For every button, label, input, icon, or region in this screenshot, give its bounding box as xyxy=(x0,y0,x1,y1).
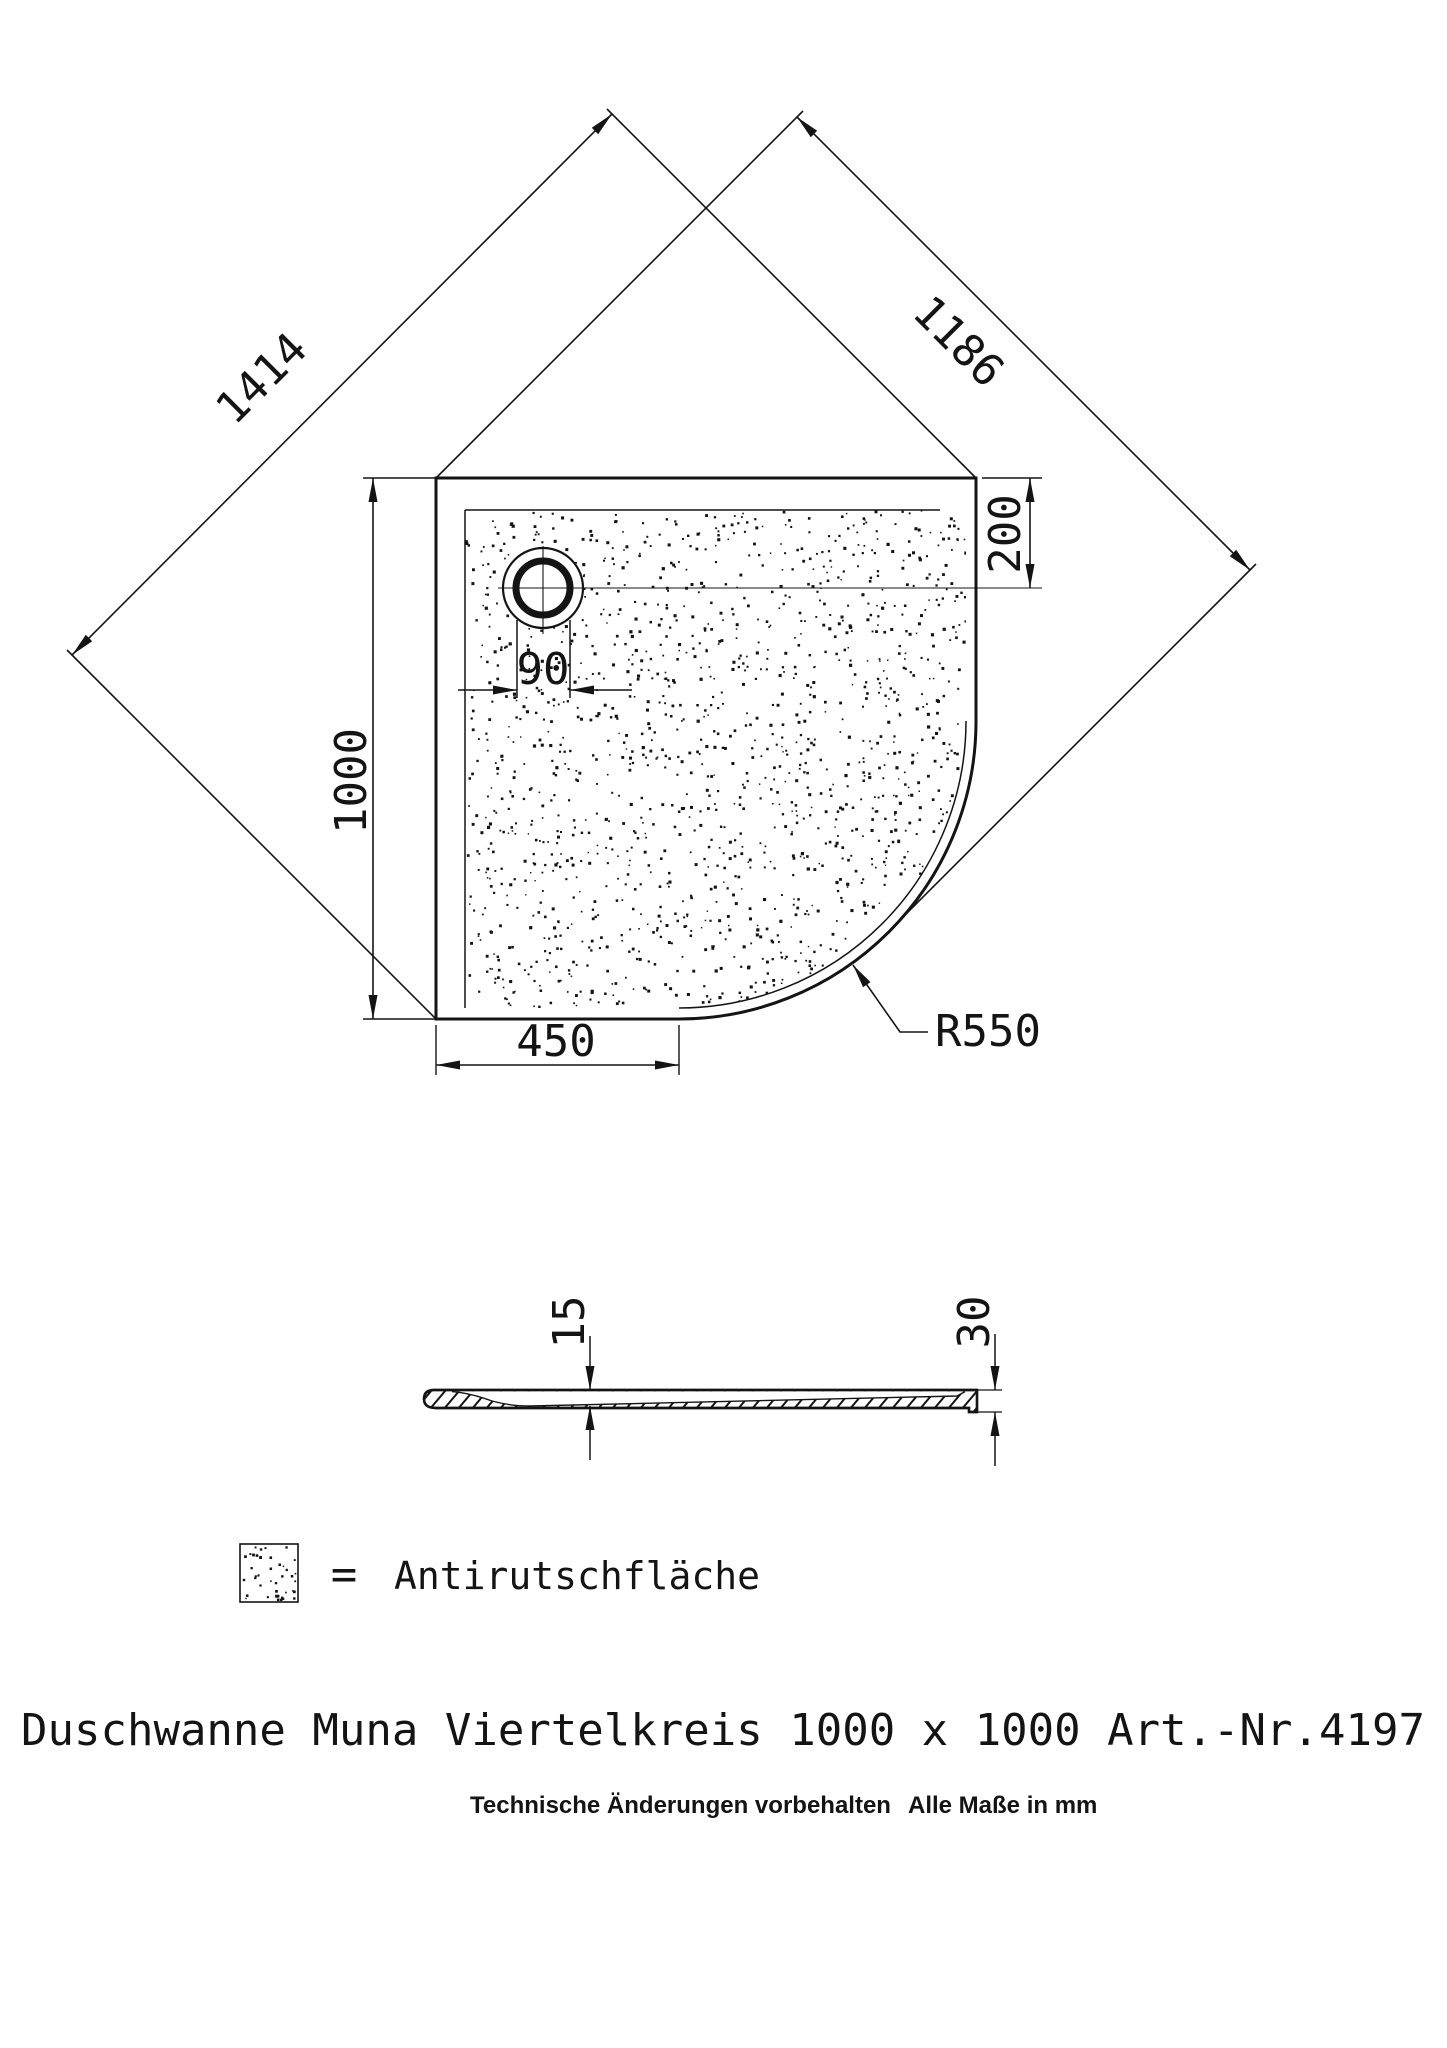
legend-stipple-swatch xyxy=(240,1544,298,1602)
drain xyxy=(498,546,1042,634)
dim-label-1414: 1414 xyxy=(206,323,317,434)
dimension-offset-200: 200 xyxy=(980,478,1042,588)
arrowhead xyxy=(991,1412,1000,1436)
dimension-diagonal-1186: 1186 xyxy=(436,111,1256,931)
dim-label-15: 15 xyxy=(544,1296,595,1349)
arrowhead xyxy=(655,1061,679,1070)
arrowhead xyxy=(853,965,871,987)
section-view: 15 30 xyxy=(396,1296,1025,1466)
dimension-side-1000: 1000 xyxy=(326,478,436,1019)
dim-label-90: 90 xyxy=(517,644,570,695)
arrowhead xyxy=(570,686,594,695)
dimension-height-30: 30 xyxy=(949,1296,1002,1466)
radius-label-r550: R550 xyxy=(935,1006,1041,1057)
arrowhead xyxy=(991,1366,1000,1390)
dimension-drain-90: 90 xyxy=(458,620,632,698)
dim-label-30: 30 xyxy=(949,1296,1000,1349)
dimension-bottom-450: 450 xyxy=(436,1016,679,1075)
footnote-left: Technische Änderungen vorbehalten xyxy=(470,1792,891,1819)
drawing-title: Duschwanne Muna Viertelkreis 1000 x 1000… xyxy=(21,1705,1425,1756)
legend-label: Antirutschfläche xyxy=(394,1554,760,1598)
dim-label-200: 200 xyxy=(980,494,1031,573)
dimension-depth-15: 15 xyxy=(544,1296,595,1460)
technical-drawing-canvas: 1414 1186 1000 450 xyxy=(0,0,1447,2048)
arrowhead xyxy=(436,1061,460,1070)
dim-label-450: 450 xyxy=(516,1016,595,1067)
dim-label-1186: 1186 xyxy=(903,286,1014,397)
arrowhead xyxy=(369,995,378,1019)
arrowhead xyxy=(369,478,378,502)
legend: = Antirutschfläche xyxy=(240,1544,760,1602)
footnote-right: Alle Maße in mm xyxy=(908,1792,1097,1819)
plan-view: 1414 1186 1000 450 xyxy=(67,109,1256,1075)
radius-leader-r550: R550 xyxy=(853,965,1041,1057)
arrowhead xyxy=(586,1406,595,1430)
drawing-sheet: 1414 1186 1000 450 xyxy=(0,0,1447,2048)
dim-label-1000: 1000 xyxy=(326,728,377,834)
arrowhead xyxy=(586,1366,595,1390)
legend-equals-sign: = xyxy=(331,1549,358,1600)
